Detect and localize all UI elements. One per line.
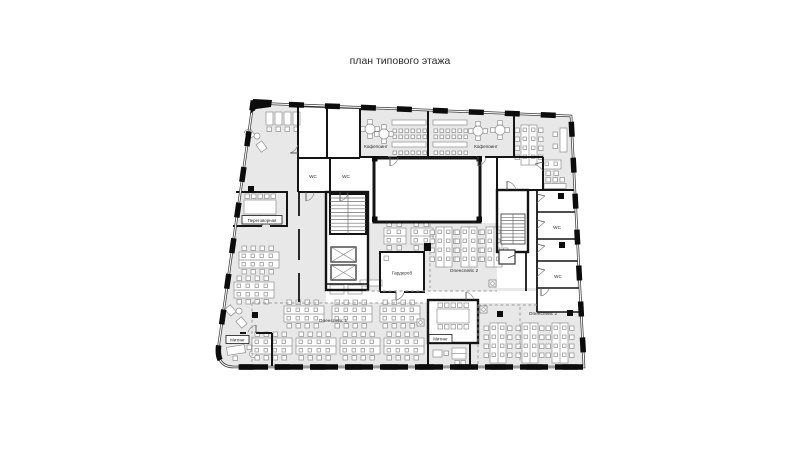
- room-label-meeting-center: Митинг: [433, 337, 448, 342]
- room-label-coffee-point-2: Кофепоинт: [474, 144, 499, 149]
- room-label-openspace-2-right: Опенспейс 2: [529, 310, 558, 317]
- room-label-meeting-left: Митинг: [230, 338, 245, 343]
- room-label-wc-top-1: WC: [309, 174, 317, 179]
- room-label-coffee-point-1: Кофепоинт: [364, 144, 389, 149]
- room-label-negotiation: Переговорная: [248, 218, 277, 223]
- floor-plan-page: план типового этажа: [0, 0, 800, 450]
- floor-plan-svg: план типового этажа: [0, 0, 800, 450]
- room-label-wc-right-1: WC: [553, 225, 561, 230]
- room-label-wc-top-2: WC: [342, 174, 350, 179]
- furniture-meeting-center: [437, 303, 469, 329]
- room-label-openspace-2-center: Опенспейс 2: [450, 267, 479, 274]
- room-label-wc-right-2: WC: [554, 274, 562, 279]
- room-label-openspace-1: Опенспейс 1: [319, 317, 348, 324]
- furniture-openspace-2-right: [484, 323, 574, 363]
- page-title: план типового этажа: [350, 55, 451, 67]
- room-label-wardrobe: Гардероб: [392, 271, 413, 276]
